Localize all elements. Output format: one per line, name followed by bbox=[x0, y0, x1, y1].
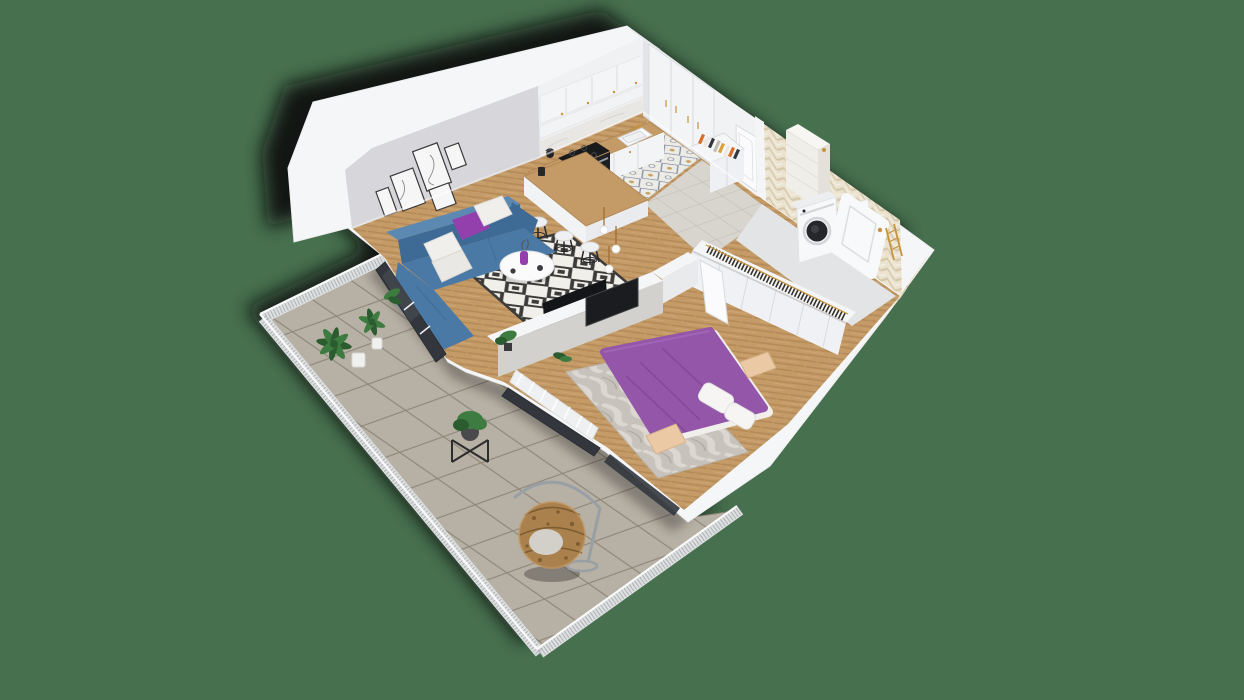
purple-vase bbox=[520, 251, 528, 265]
island-canister bbox=[538, 167, 545, 176]
floor-plan-stage bbox=[0, 0, 1244, 700]
egg-chair-cushion bbox=[529, 529, 563, 555]
plant-pot-white-small bbox=[372, 338, 382, 349]
tub-faucet bbox=[878, 228, 882, 232]
floor-plan-render bbox=[0, 0, 1244, 700]
plant-pot-white bbox=[352, 353, 365, 367]
shower-head bbox=[822, 148, 826, 152]
